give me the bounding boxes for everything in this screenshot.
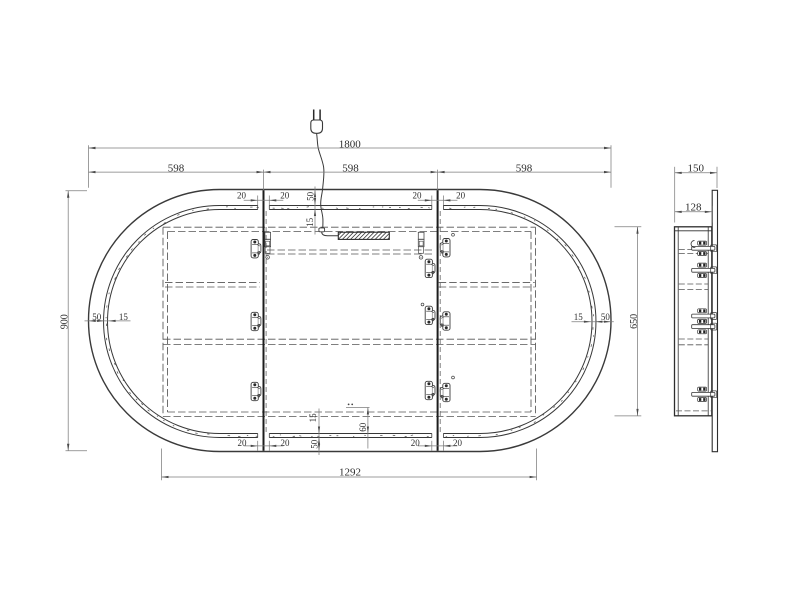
svg-text:50: 50	[309, 439, 319, 449]
svg-text:598: 598	[342, 162, 359, 174]
svg-text:20: 20	[456, 190, 466, 200]
svg-text:15: 15	[308, 413, 318, 423]
svg-text:15: 15	[574, 312, 584, 322]
svg-text:50: 50	[92, 312, 102, 322]
svg-text:15: 15	[119, 312, 129, 322]
svg-text:20: 20	[238, 438, 248, 448]
svg-text:20: 20	[281, 438, 291, 448]
svg-text:598: 598	[168, 162, 185, 174]
svg-text:1800: 1800	[339, 138, 362, 150]
svg-text:50: 50	[306, 191, 316, 201]
svg-text:1292: 1292	[339, 467, 361, 479]
svg-text:20: 20	[237, 190, 247, 200]
svg-text:50: 50	[601, 312, 611, 322]
svg-text:128: 128	[685, 201, 702, 213]
svg-text:20: 20	[413, 190, 423, 200]
svg-text:650: 650	[629, 314, 640, 329]
svg-text:598: 598	[516, 162, 533, 174]
svg-text:20: 20	[280, 190, 290, 200]
svg-text:20: 20	[453, 438, 463, 448]
svg-text:900: 900	[60, 314, 71, 329]
svg-text:60: 60	[358, 422, 368, 432]
svg-text:15: 15	[305, 217, 315, 227]
svg-text:150: 150	[688, 162, 705, 174]
svg-text:20: 20	[411, 438, 421, 448]
